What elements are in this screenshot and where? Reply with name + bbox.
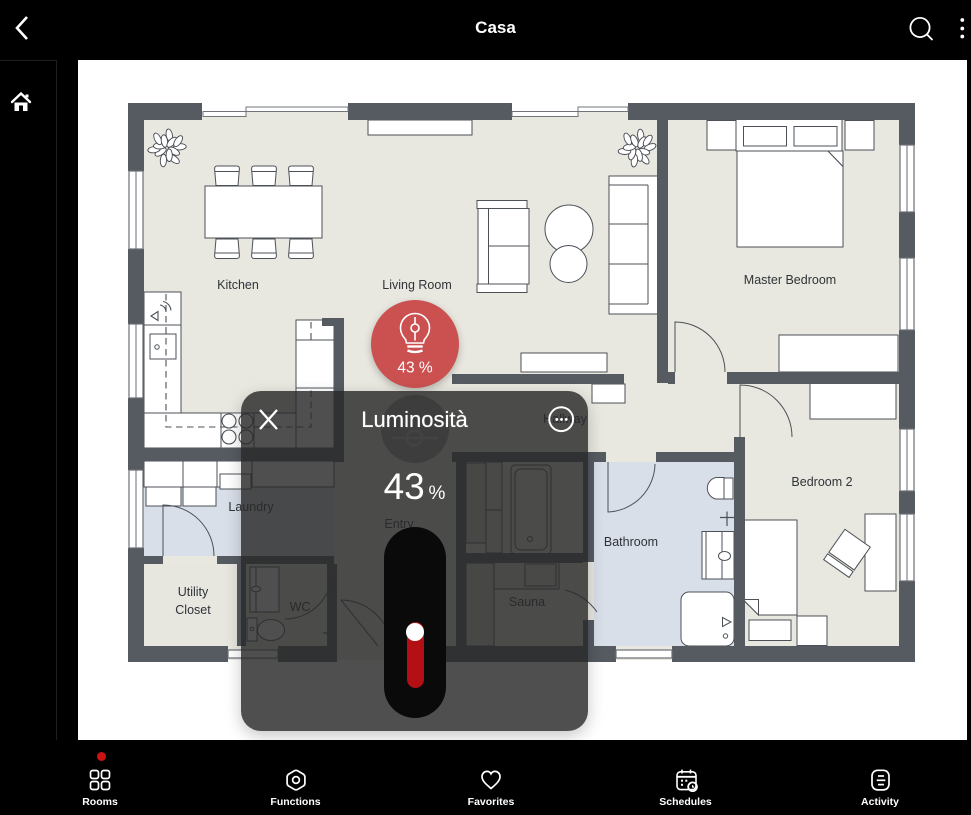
svg-text:Bathroom: Bathroom — [604, 535, 658, 549]
svg-text:Bedroom 2: Bedroom 2 — [791, 475, 852, 489]
svg-text:Master Bedroom: Master Bedroom — [744, 273, 836, 287]
svg-text:43 %: 43 % — [397, 360, 433, 377]
svg-text:Kitchen: Kitchen — [217, 278, 259, 292]
svg-text:Living Room: Living Room — [382, 278, 451, 292]
svg-text:Utility: Utility — [178, 585, 209, 599]
svg-text:Closet: Closet — [175, 603, 211, 617]
